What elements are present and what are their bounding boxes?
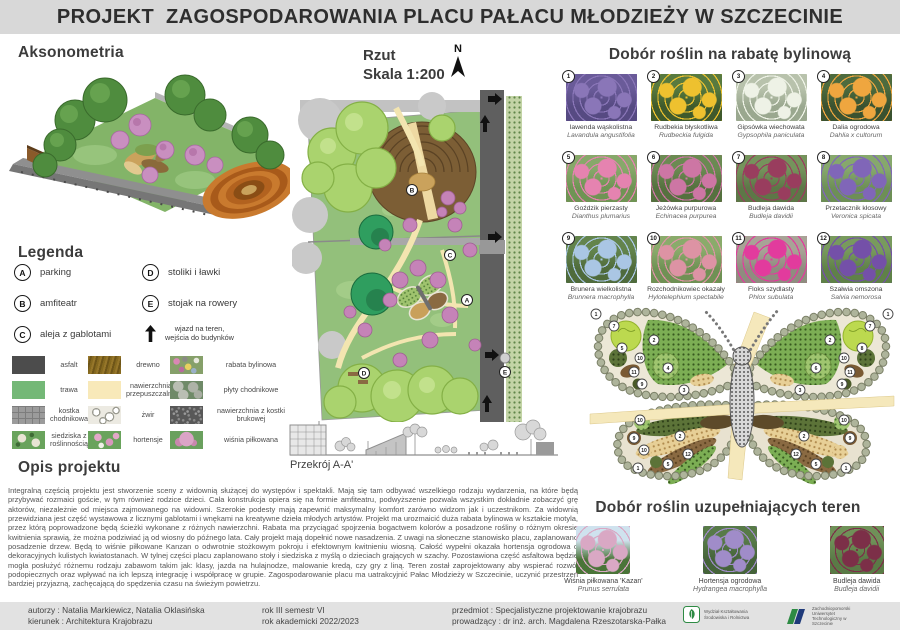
svg-text:N: N	[454, 43, 462, 55]
material-item: hortensje	[88, 431, 170, 449]
plant-card: 5Goździk pierzastyDianthus plumarius	[562, 155, 640, 226]
plant-photo	[576, 526, 630, 574]
plant-number-badge: 12	[817, 232, 830, 245]
material-item: płyty chodnikowe	[170, 381, 294, 399]
plant-latin-name: Rudbeckia fulgida	[647, 132, 725, 140]
legend-column-left: AparkingBamfiteatrCaleja z gablotami	[14, 257, 142, 350]
poster-title: PROJEKT ZAGOSPODAROWANIA PLACU PAŁACU MŁ…	[0, 0, 900, 34]
plant-card: Hortensja ogrodowaHydrangea macrophylla	[687, 526, 774, 594]
legend-key: D	[142, 264, 159, 281]
plant-latin-name: Budleja davidii	[813, 586, 900, 594]
material-item: asfalt	[12, 356, 88, 374]
plant-card: 2Rudbekia błyskotliwaRudbeckia fulgida	[647, 74, 725, 145]
legend-key: B	[14, 295, 31, 312]
authors-line: autorzy : Natalia Markiewicz, Natalia Ok…	[28, 605, 205, 616]
material-swatch	[12, 406, 45, 424]
plant-card: 1lawenda wąskolistnaLavandula angustifol…	[562, 74, 640, 145]
butterfly-plant-marker-number: 10	[841, 418, 847, 424]
plant-name: Budleja dawida	[732, 205, 810, 213]
butterfly-plant-marker-number: 9	[841, 382, 844, 388]
site-plan-drawing: BCADE	[292, 90, 560, 422]
plant-latin-name: Dahlia x cultorum	[817, 132, 895, 140]
plant-photo	[736, 74, 807, 121]
academic-year-line: rok akademicki 2022/2023	[262, 616, 359, 627]
legend-key: A	[14, 264, 31, 281]
material-item: nawierzchnia z kostki brukowej	[170, 406, 294, 424]
plant-photo	[703, 526, 757, 574]
plant-name: Wiśnia piłkowana 'Kazan'	[560, 578, 647, 586]
material-label: nawierzchnia przepuszczalna	[126, 382, 176, 398]
legend-item-entry: wjazd na teren,wejścia do budynków	[142, 318, 234, 349]
description-text: Integralną częścią projektu jest stworze…	[8, 486, 578, 589]
rzut-label: Rzut	[363, 46, 445, 65]
butterfly-plant-marker-number: 10	[637, 356, 643, 362]
plant-name: Jeżówka purpurowa	[647, 205, 725, 213]
butterfly-plant-marker-number: 2	[653, 338, 656, 344]
plan-letter: D	[362, 370, 367, 377]
plant-photo	[566, 74, 637, 121]
plant-latin-name: Gypsophila paniculata	[732, 132, 810, 140]
plant-name: Szałwia omszona	[817, 286, 895, 294]
plan-letter: B	[410, 187, 415, 194]
footer-bar: autorzy : Natalia Markiewicz, Natalia Ok…	[0, 602, 900, 630]
material-swatch	[88, 406, 121, 424]
butterfly-plant-marker-number: 2	[829, 338, 832, 344]
material-swatch	[12, 431, 45, 449]
plant-photo	[651, 236, 722, 283]
material-label: kostka chodnikowa	[50, 407, 88, 423]
plant-card: 12Szałwia omszonaSalvia nemorosa	[817, 236, 895, 307]
butterfly-plant-marker-number: 7	[613, 324, 616, 330]
plan-letter: C	[448, 252, 453, 259]
butterfly-plant-marker-number: 2	[803, 434, 806, 440]
legend-item-C: Caleja z gablotami	[14, 319, 142, 350]
university-logo: Zachodniopomorski Uniwersytet Technologi…	[782, 606, 860, 626]
material-swatch	[170, 431, 203, 449]
leaf-logo-icon	[683, 606, 700, 623]
butterfly-plant-marker-number: 5	[815, 462, 818, 468]
legend-label: stoliki i ławki	[168, 267, 220, 278]
plant-card: Budleja dawidaBudleja davidii	[813, 526, 900, 594]
plant-card: 7Budleja dawidaBudleja davidii	[732, 155, 810, 226]
material-swatch	[12, 356, 45, 374]
butterfly-plant-marker-number: 10	[637, 418, 643, 424]
material-item: rabata bylinowa	[170, 356, 294, 374]
plant-name: lawenda wąskolistna	[562, 124, 640, 132]
plant-number-badge: 6	[647, 151, 660, 164]
plant-photo	[566, 155, 637, 202]
plant-name: Rozchodnikowiec okazały	[647, 286, 725, 294]
plant-latin-name: Hylotelephium spectabile	[647, 294, 725, 302]
butterfly-plant-marker-number: 11	[847, 370, 853, 376]
plant-name: Dalia ogrodowa	[817, 124, 895, 132]
plant-photo	[736, 236, 807, 283]
plant-card: 4Dalia ogrodowaDahlia x cultorum	[817, 74, 895, 145]
plant-photo	[651, 74, 722, 121]
legend-key: E	[142, 295, 159, 312]
legend-entry-label: wjazd na teren,wejścia do budynków	[165, 325, 234, 342]
plant-photo	[830, 526, 884, 574]
plant-number-badge: 8	[817, 151, 830, 164]
plant-name: Przetacznik kłosowy	[817, 205, 895, 213]
extra-plants-heading: Dobór roślin uzupełniających teren	[552, 499, 900, 517]
butterfly-plant-marker-number: 12	[793, 452, 799, 458]
legend-key: C	[14, 326, 31, 343]
plant-name: Floks szydlasty	[732, 286, 810, 294]
perennial-plants-heading: Dobór roślin na rabatę bylinową	[560, 46, 900, 64]
plant-latin-name: Prunus serrulata	[560, 586, 647, 594]
university-logo-icon	[782, 608, 808, 625]
material-swatch	[170, 381, 203, 399]
plant-card: 3Gipsówka wiechowataGypsophila paniculat…	[732, 74, 810, 145]
butterfly-bed-plan: 1725101149317281011693102910125110291251	[586, 302, 898, 486]
plant-card: 9Brunera wielkolistnaBrunnera macrophyll…	[562, 236, 640, 307]
plant-latin-name: Hydrangea macrophylla	[687, 586, 774, 594]
plant-latin-name: Lavandula angustifolia	[562, 132, 640, 140]
material-label: asfalt	[50, 361, 88, 369]
plant-name: Gipsówka wiechowata	[732, 124, 810, 132]
butterfly-plant-marker-number: 1	[595, 312, 598, 318]
legend-item-E: Estojak na rowery	[142, 288, 292, 319]
butterfly-plant-marker-number: 10	[841, 356, 847, 362]
legend-item-B: Bamfiteatr	[14, 288, 142, 319]
year-block: rok III semestr VI rok akademicki 2022/2…	[262, 605, 359, 627]
plant-number-badge: 7	[732, 151, 745, 164]
plant-photo	[821, 155, 892, 202]
plant-latin-name: Veronica spicata	[817, 213, 895, 221]
material-label: siedziska z roślinnością	[50, 432, 88, 448]
material-label: rabata bylinowa	[208, 361, 294, 369]
plant-latin-name: Echinacea purpurea	[647, 213, 725, 221]
plant-latin-name: Dianthus plumarius	[562, 213, 640, 221]
plant-name: Budleja dawida	[813, 578, 900, 586]
faculty-line: kierunek : Architektura Krajobrazu	[28, 616, 205, 627]
plant-number-badge: 4	[817, 70, 830, 83]
butterfly-plant-marker-number: 8	[861, 346, 864, 352]
legend-label: stojak na rowery	[168, 298, 237, 309]
plant-name: Goździk pierzasty	[562, 205, 640, 213]
butterfly-plant-marker-number: 1	[845, 466, 848, 472]
plant-latin-name: Brunnera macrophylla	[562, 294, 640, 302]
plan-letter: A	[465, 297, 470, 304]
material-item: kostka chodnikowa	[12, 406, 88, 424]
legend-label: amfiteatr	[40, 298, 77, 309]
subject-line: przedmiot : Specjalistyczne projektowani…	[452, 605, 666, 616]
legend-item-A: Aparking	[14, 257, 142, 288]
butterfly-plant-marker-number: 1	[887, 312, 890, 318]
arrow-up-icon	[145, 325, 156, 342]
section-drawing	[288, 419, 560, 461]
axonometric-drawing	[5, 60, 290, 228]
legend-column-right: wjazd na teren,wejścia do budynków Dstol…	[142, 257, 292, 319]
material-item: drewno	[88, 356, 170, 374]
material-label: drewno	[126, 361, 170, 369]
authors-block: autorzy : Natalia Markiewicz, Natalia Ok…	[28, 605, 205, 627]
rzut-heading: Rzut Skala 1:200	[363, 46, 445, 84]
year-line: rok III semestr VI	[262, 605, 359, 616]
butterfly-plant-marker-number: 9	[633, 436, 636, 442]
plan-letter: E	[503, 369, 508, 376]
plant-photo	[566, 236, 637, 283]
supervisor-line: prowadzący : dr inż. arch. Magdalena Rze…	[452, 616, 666, 627]
description-heading: Opis projektu	[18, 459, 121, 477]
material-item: trawa	[12, 381, 88, 399]
plant-card: 6Jeżówka purpurowaEchinacea purpurea	[647, 155, 725, 226]
material-item: żwir	[88, 406, 170, 424]
material-label: wiśnia piłkowana	[208, 436, 294, 444]
plant-number-badge: 3	[732, 70, 745, 83]
plant-photo	[821, 236, 892, 283]
north-arrow-icon: N	[449, 42, 467, 80]
extra-plants-row: Wiśnia piłkowana 'Kazan'Prunus serrulata…	[560, 526, 900, 594]
material-swatch	[12, 381, 45, 399]
butterfly-plant-marker-number: 12	[685, 452, 691, 458]
perennial-plants-grid: 1lawenda wąskolistnaLavandula angustifol…	[562, 74, 900, 307]
plant-card: 10Rozchodnikowiec okazałyHylotelephium s…	[647, 236, 725, 307]
poster: PROJEKT ZAGOSPODAROWANIA PLACU PAŁACU MŁ…	[0, 0, 900, 630]
plant-photo	[651, 155, 722, 202]
section-label: Przekrój A-A'	[290, 459, 353, 471]
materials-legend: asfaltdrewnorabata bylinowatrawanawierzc…	[12, 352, 294, 452]
legend-item-D: Dstoliki i ławki	[142, 257, 292, 288]
butterfly-plant-marker-number: 5	[667, 462, 670, 468]
plant-name: Hortensja ogrodowa	[687, 578, 774, 586]
plant-number-badge: 1	[562, 70, 575, 83]
material-item: nawierzchnia przepuszczalna	[88, 381, 170, 399]
scale-label: Skala 1:200	[363, 65, 445, 84]
material-label: żwir	[126, 411, 170, 419]
material-label: trawa	[50, 386, 88, 394]
material-swatch	[170, 406, 203, 424]
subject-block: przedmiot : Specjalistyczne projektowani…	[452, 605, 666, 627]
material-swatch	[88, 356, 121, 374]
material-label: nawierzchnia z kostki brukowej	[208, 407, 294, 423]
material-swatch	[170, 356, 203, 374]
plant-number-badge: 2	[647, 70, 660, 83]
butterfly-plant-marker-number: 5	[621, 346, 624, 352]
plant-number-badge: 5	[562, 151, 575, 164]
material-label: płyty chodnikowe	[208, 386, 294, 394]
butterfly-plant-marker-number: 7	[869, 324, 872, 330]
butterfly-plant-marker-number: 1	[637, 466, 640, 472]
plant-name: Rudbekia błyskotliwa	[647, 124, 725, 132]
plant-latin-name: Salvia nemorosa	[817, 294, 895, 302]
title-bar: PROJEKT ZAGOSPODAROWANIA PLACU PAŁACU MŁ…	[0, 0, 900, 34]
butterfly-plant-marker-number: 4	[667, 366, 670, 372]
plant-card: Wiśnia piłkowana 'Kazan'Prunus serrulata	[560, 526, 647, 594]
plant-number-badge: 11	[732, 232, 745, 245]
plant-latin-name: Budleja davidii	[732, 213, 810, 221]
butterfly-plant-marker-number: 9	[849, 436, 852, 442]
material-item: siedziska z roślinnością	[12, 431, 88, 449]
material-swatch	[88, 431, 121, 449]
material-label: hortensje	[126, 436, 170, 444]
butterfly-plant-marker-number: 6	[815, 366, 818, 372]
plant-number-badge: 9	[562, 232, 575, 245]
plant-name: Brunera wielkolistna	[562, 286, 640, 294]
plant-card: 11Floks szydlastyPhlox subulata	[732, 236, 810, 307]
faculty-logo-text: Wydział Kształtowania Środowiska i Rolni…	[704, 609, 752, 619]
plant-photo	[821, 74, 892, 121]
material-item: wiśnia piłkowana	[170, 431, 294, 449]
faculty-logo: Wydział Kształtowania Środowiska i Rolni…	[683, 606, 752, 623]
plant-latin-name: Phlox subulata	[732, 294, 810, 302]
plant-card: 8Przetacznik kłosowyVeronica spicata	[817, 155, 895, 226]
material-swatch	[88, 381, 121, 399]
butterfly-plant-marker-number: 2	[679, 434, 682, 440]
butterfly-plant-marker-number: 9	[641, 382, 644, 388]
butterfly-plant-marker-number: 11	[631, 370, 637, 376]
legend-label: aleja z gablotami	[40, 329, 111, 340]
butterfly-plant-marker-number: 3	[799, 388, 802, 394]
university-logo-text: Zachodniopomorski Uniwersytet Technologi…	[812, 606, 860, 626]
plant-number-badge: 10	[647, 232, 660, 245]
butterfly-plant-marker-number: 10	[641, 448, 647, 454]
butterfly-plant-marker-number: 3	[683, 388, 686, 394]
plant-photo	[736, 155, 807, 202]
legend-label: parking	[40, 267, 71, 278]
